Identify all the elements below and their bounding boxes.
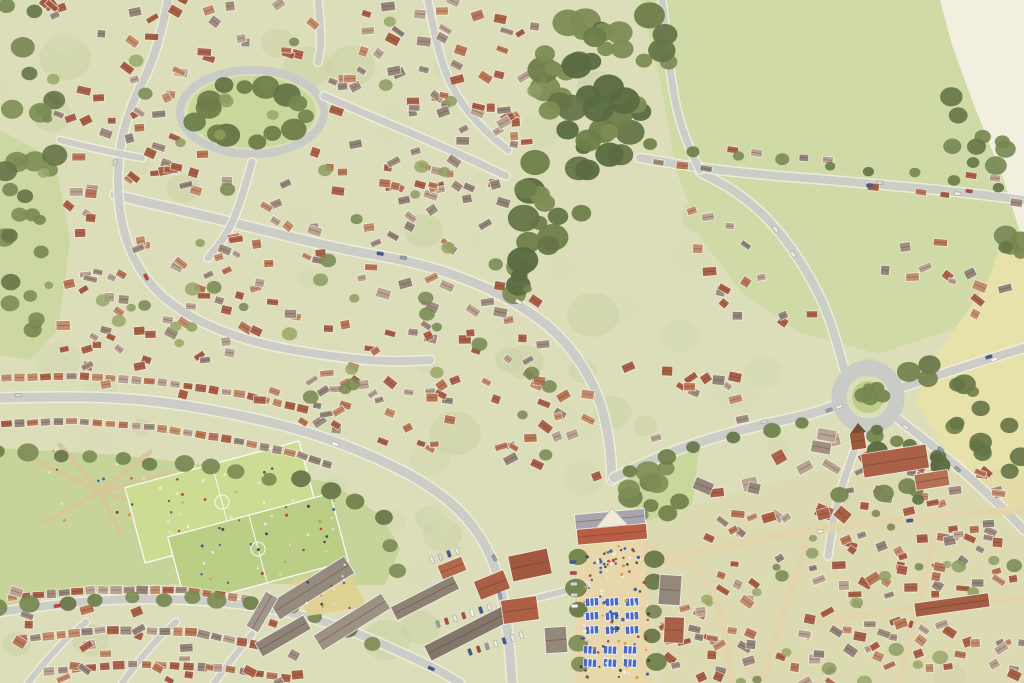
watercolor-unifying-wash-fill [0, 0, 1024, 683]
masterplan-illustration [0, 0, 1024, 683]
watercolor-unifying-wash [0, 0, 1024, 683]
scene-svg [0, 0, 1024, 683]
